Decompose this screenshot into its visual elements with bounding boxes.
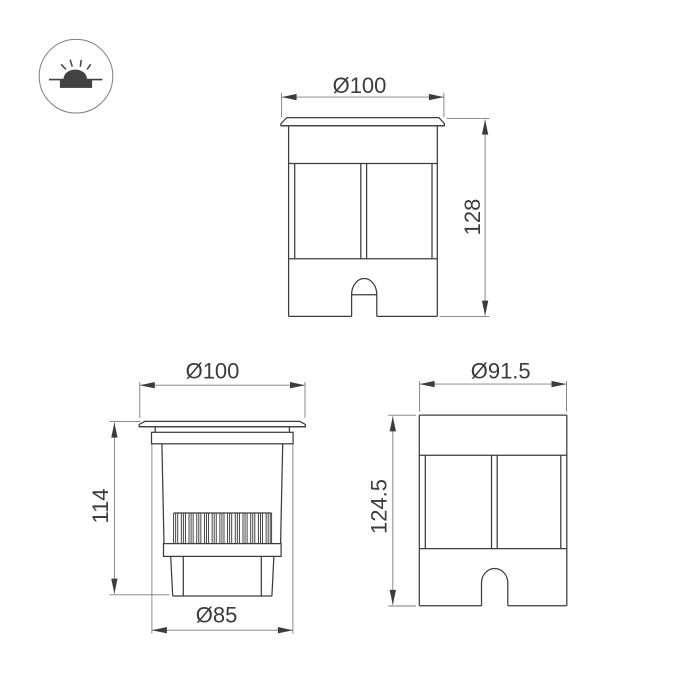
- svg-text:114: 114: [88, 488, 113, 523]
- svg-text:Ø100: Ø100: [186, 358, 240, 383]
- svg-text:Ø91.5: Ø91.5: [471, 359, 531, 384]
- svg-text:Ø100: Ø100: [333, 73, 387, 98]
- svg-text:Ø85: Ø85: [196, 603, 238, 628]
- svg-text:128: 128: [460, 199, 485, 236]
- svg-text:124.5: 124.5: [366, 479, 391, 534]
